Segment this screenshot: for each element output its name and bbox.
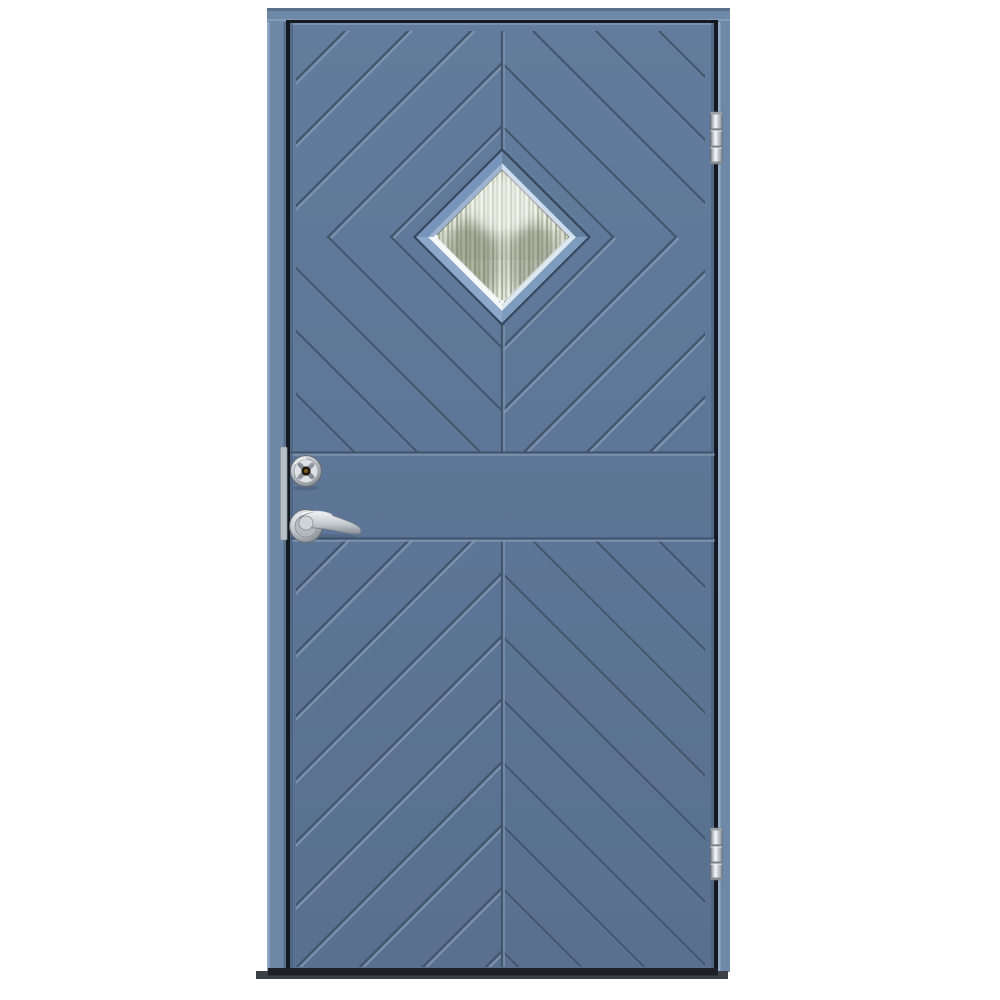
hinge-top-knuckle-1-highlight bbox=[711, 130, 723, 131]
hinge-bottom-barrel bbox=[711, 828, 723, 880]
bottom-seal-bar bbox=[268, 968, 718, 976]
hinge-bottom-cap-upper bbox=[711, 828, 723, 831]
frame-left-highlight bbox=[267, 22, 270, 972]
deadbolt-key-pin bbox=[304, 469, 308, 473]
frame-header-top-edge bbox=[267, 8, 730, 11]
slab-left-shadow bbox=[290, 23, 293, 970]
hinge-bottom-cap-lower bbox=[711, 878, 723, 881]
hinge-top bbox=[711, 112, 723, 164]
hinge-bottom-knuckle-1-highlight bbox=[711, 846, 723, 847]
door-scene bbox=[0, 0, 1000, 1000]
hinge-bottom bbox=[711, 828, 723, 880]
strike-plate bbox=[281, 447, 288, 540]
door-bottom-seal bbox=[256, 968, 728, 979]
door-product-photo bbox=[0, 0, 1000, 1000]
handle-hub bbox=[299, 516, 313, 530]
window-glint-left bbox=[434, 235, 438, 239]
hinge-top-barrel bbox=[711, 112, 723, 164]
hinge-top-knuckle-2 bbox=[711, 146, 723, 148]
hinge-top-cap-upper bbox=[711, 112, 723, 115]
hinge-top-cap-lower bbox=[711, 162, 723, 165]
hinge-bottom-knuckle-2-highlight bbox=[711, 864, 723, 865]
window-glint-bottom bbox=[500, 300, 504, 304]
hinge-bottom-knuckle-1 bbox=[711, 844, 723, 846]
hinge-bottom-knuckle-2 bbox=[711, 862, 723, 864]
slab-top-bevel bbox=[290, 23, 714, 25]
hinge-top-knuckle-2-highlight bbox=[711, 148, 723, 149]
hinge-top-knuckle-1 bbox=[711, 128, 723, 130]
